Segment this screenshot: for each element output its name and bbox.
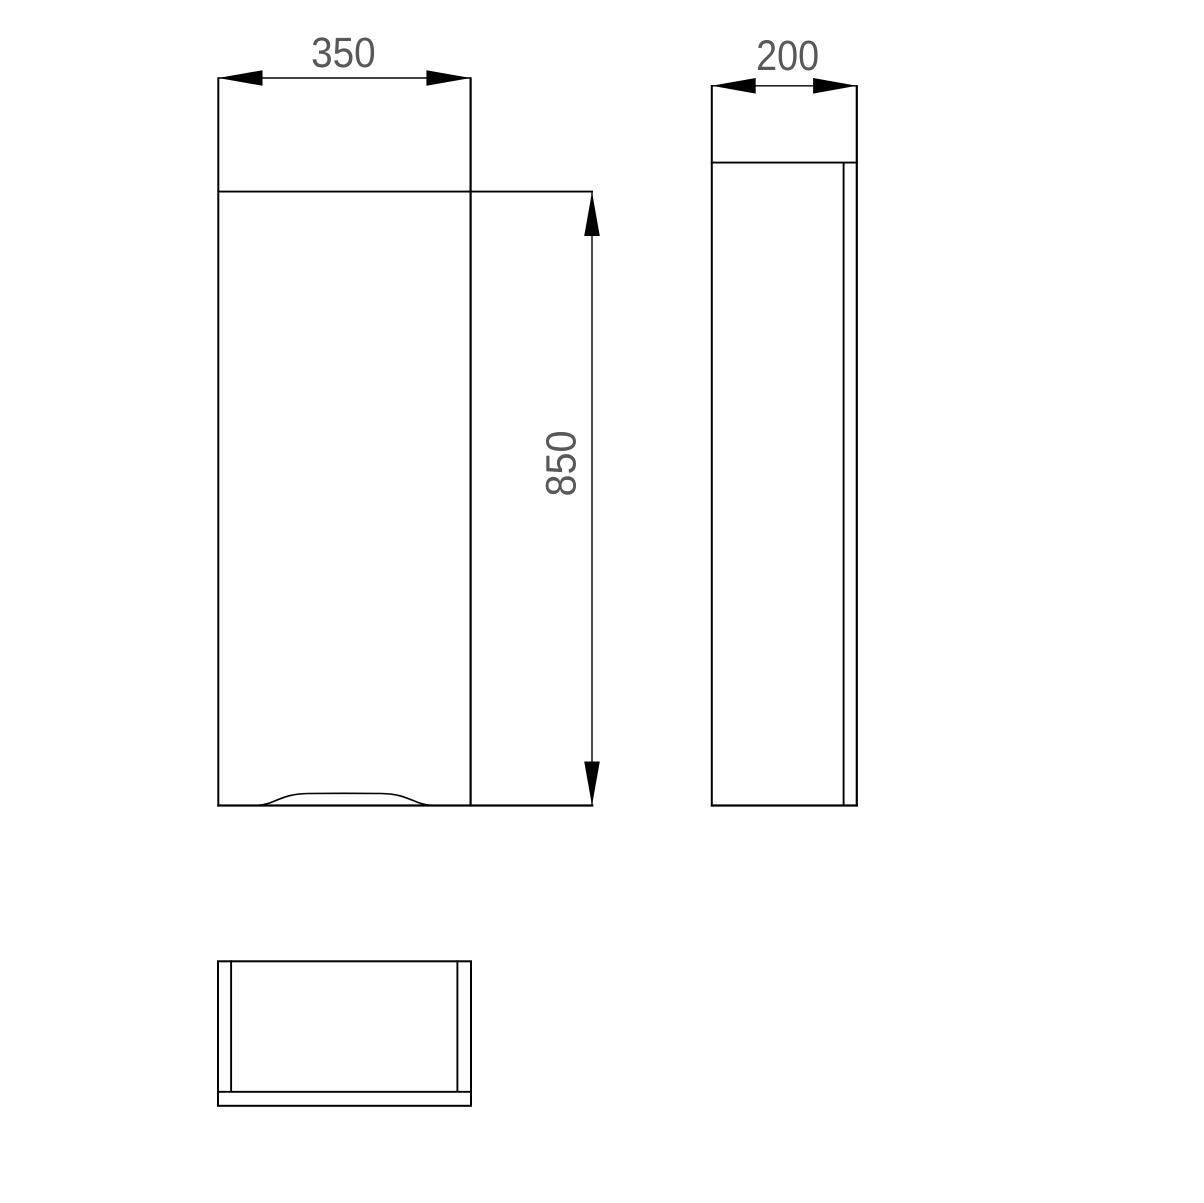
- svg-text:850: 850: [539, 431, 586, 497]
- svg-text:350: 350: [311, 30, 376, 77]
- svg-text:200: 200: [756, 33, 819, 80]
